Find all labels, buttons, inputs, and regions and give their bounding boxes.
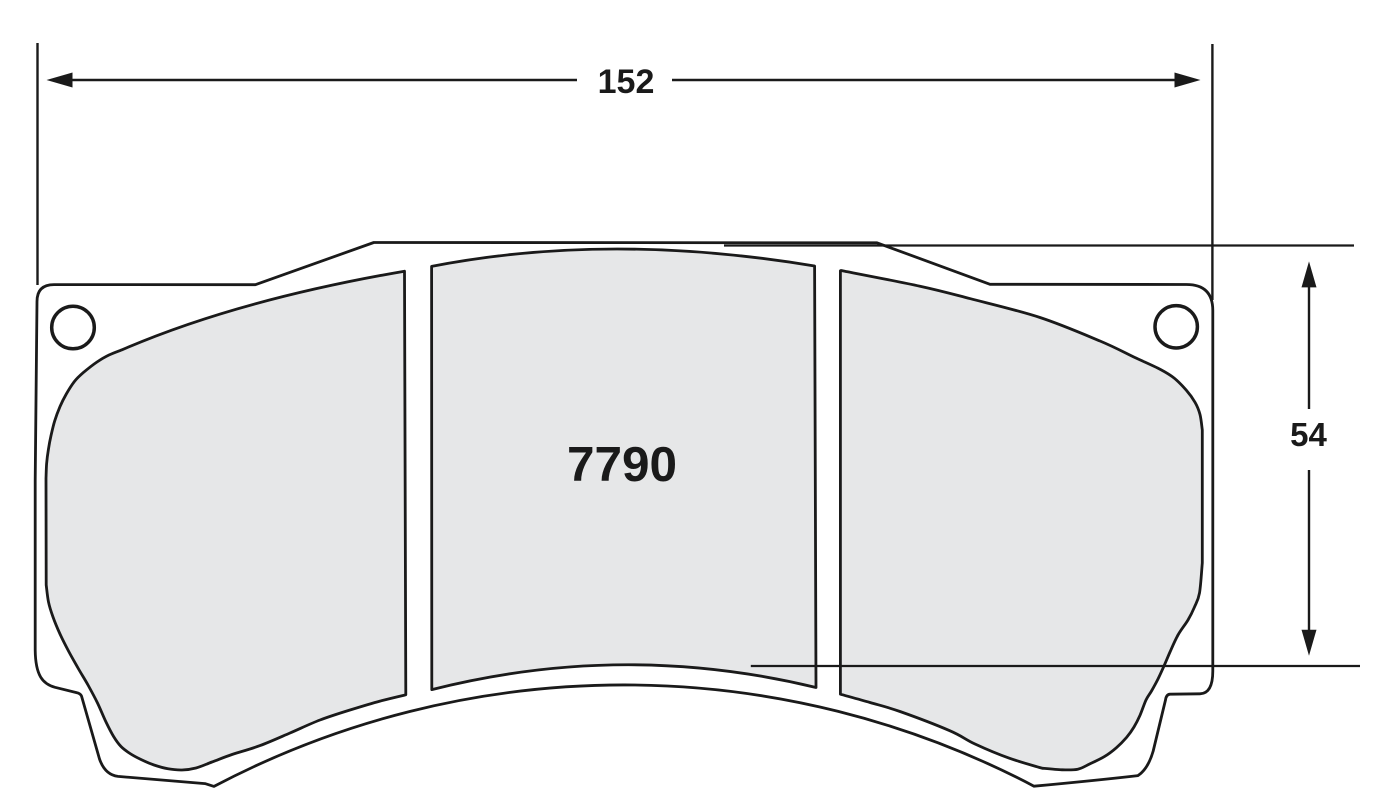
svg-text:54: 54 <box>1290 416 1327 453</box>
svg-text:152: 152 <box>598 63 655 101</box>
svg-text:7790: 7790 <box>567 437 677 492</box>
